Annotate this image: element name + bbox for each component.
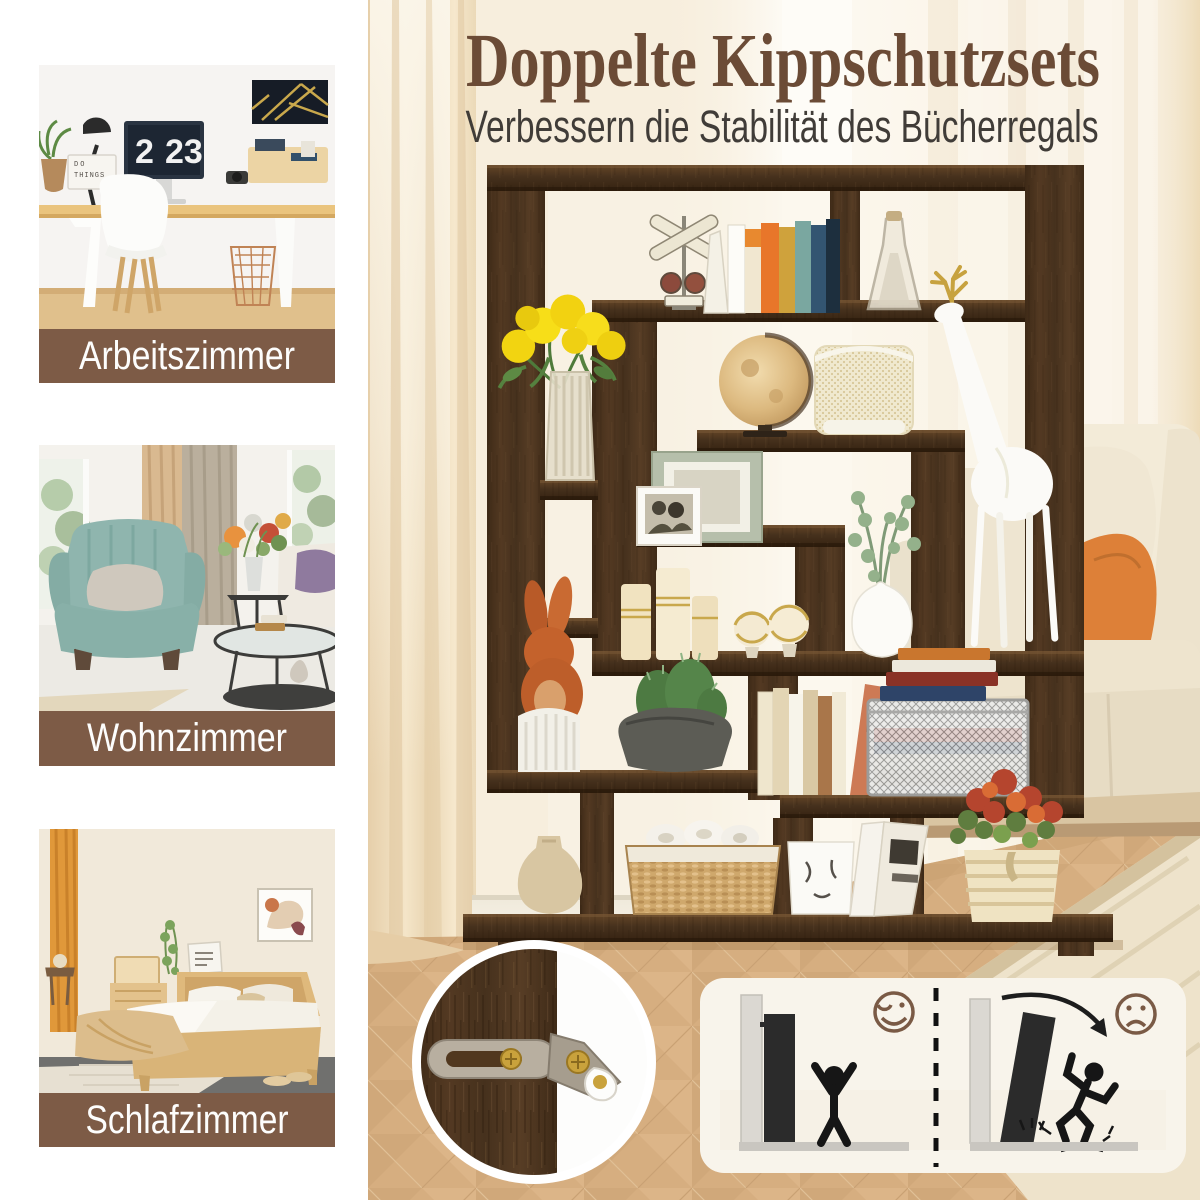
svg-text:Verbessern die Stabilität des: Verbessern die Stabilität des Bücherrega… [466,101,1099,152]
svg-text:Doppelte Kippschutzsets: Doppelte Kippschutzsets [466,19,1100,103]
svg-text:Arbeitszimmer: Arbeitszimmer [79,334,295,378]
svg-text:DO: DO [74,161,86,169]
svg-text:2: 2 [135,133,154,171]
svg-text:23: 23 [165,133,203,171]
svg-text:Schlafzimmer: Schlafzimmer [86,1098,289,1142]
svg-text:THINGS: THINGS [74,172,105,180]
svg-text:Wohnzimmer: Wohnzimmer [87,716,287,760]
